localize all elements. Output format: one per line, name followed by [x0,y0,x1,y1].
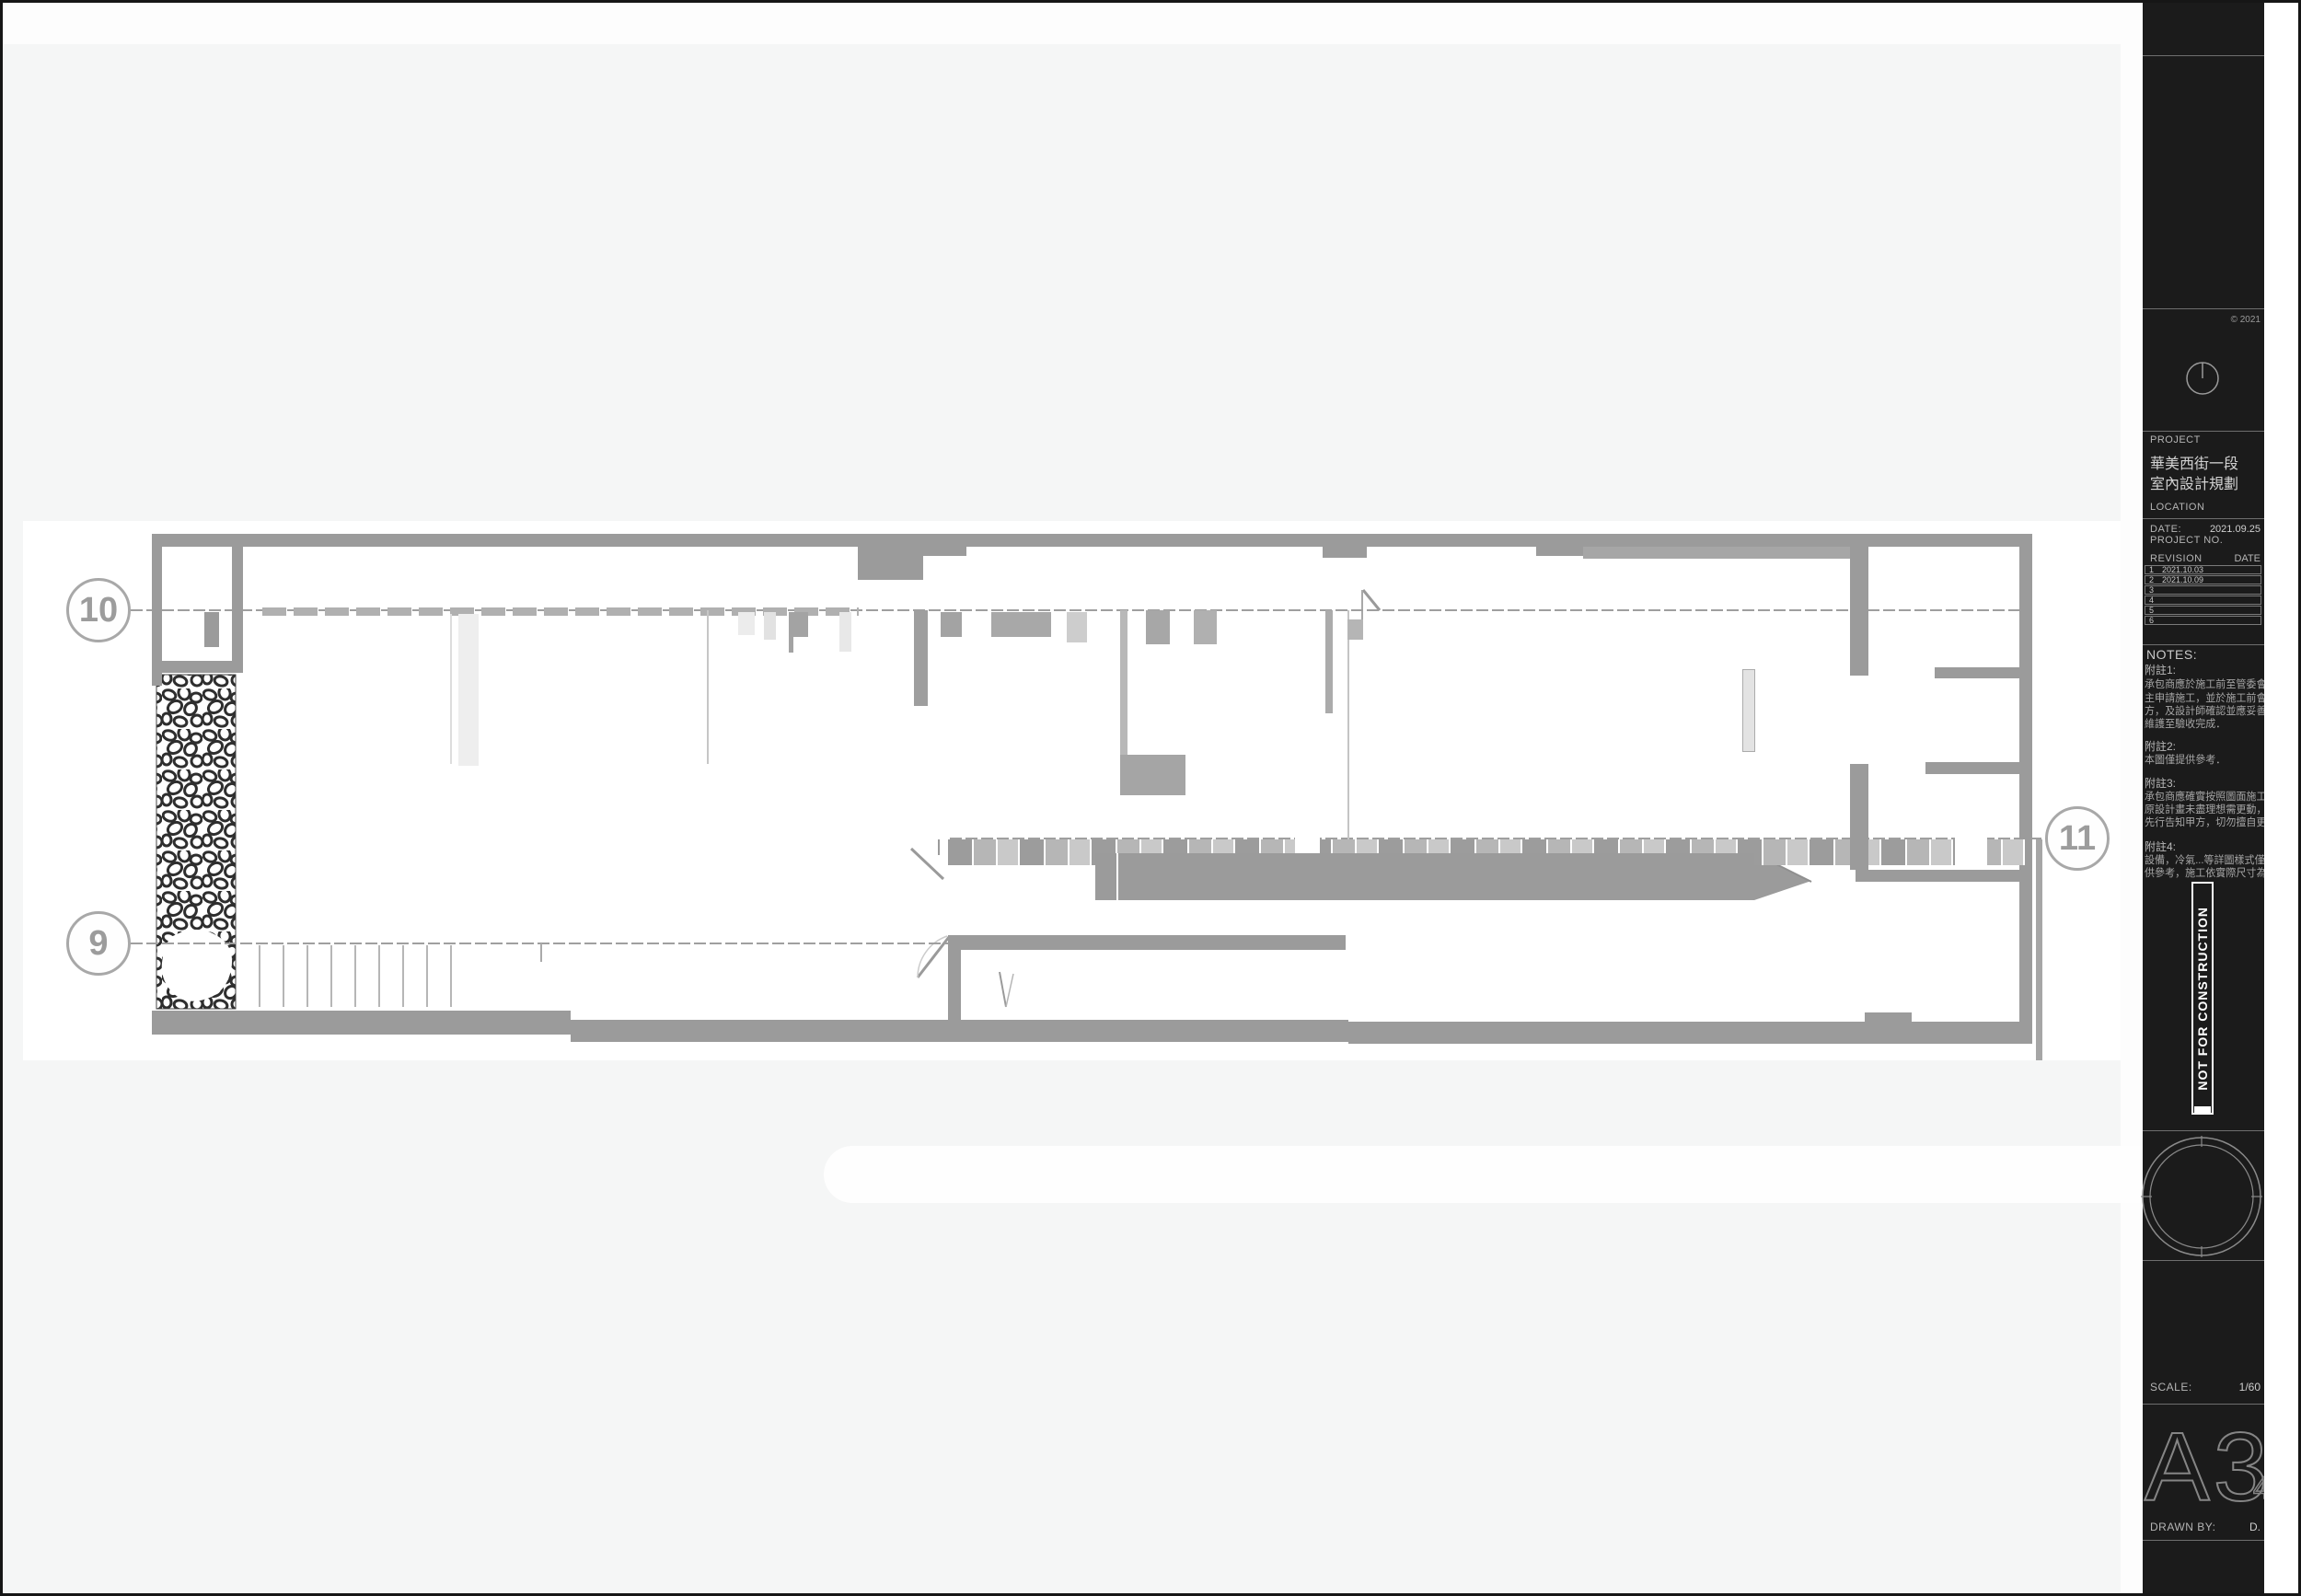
revision-no: 2 [2149,575,2162,584]
grid-bubble-11-label: 11 [2059,819,2096,859]
note-line: 本圖僅提供參考． [2145,752,2226,767]
location-label: LOCATION [2150,502,2204,513]
note-head: 附註1: [2145,662,2176,677]
stamp-circle [2141,1134,2266,1259]
wall-right-stub-1 [1935,667,2024,678]
wall-right-rooms-vert-lower [1850,764,1868,870]
wall-bottom-right [1348,1022,2032,1044]
fixture-tall-strip [914,610,928,706]
fixture-strip [1325,610,1333,713]
louver-lines [259,945,472,1007]
revision-no: 3 [2149,585,2162,595]
island-counter-slab [1095,853,1754,900]
furniture-block [764,612,776,640]
divider [2143,55,2264,56]
fixture-strip [1120,610,1127,758]
revision-no: 1 [2149,565,2162,574]
divider [2143,1260,2264,1261]
furniture-block [1194,610,1217,644]
revision-row: 3 [2145,585,2261,595]
furniture-block [991,612,1051,637]
sheet-top-strip [0,0,2143,44]
top-pillar-ledge [923,547,966,556]
fixture-light-band [458,614,479,766]
bottom-wall-bump [1865,1012,1912,1024]
wall-lower-room-top [948,935,1346,950]
revision-date-col-header: DATE [2234,553,2261,564]
revision-row: 5 [2145,606,2261,615]
drawing-sheet: 10 9 11 © 2021 PROJECT 華美西街一段 室內設計規劃 LOC… [0,0,2301,1596]
bottom-white-band [824,1146,2143,1203]
revision-row: 2 2021.10.09 [2145,575,2261,584]
louver-tick [540,943,542,962]
note-line: 維護至驗收完成． [2145,716,2226,731]
revision-no: 5 [2149,606,2162,615]
project-name-line1: 華美西街一段 [2150,451,2238,473]
divider [2143,308,2264,309]
wall-bottom-left [152,1011,571,1035]
divider [2143,518,2264,519]
fixture-light-line [450,614,452,764]
top-cabinet-strip [1583,547,1850,559]
right-white-column [2121,0,2143,1596]
grid-bubble-11: 11 [2045,806,2110,871]
wall-left-room-bottom [152,661,243,673]
copyright: © 2021 [2231,315,2261,325]
project-no-label: PROJECT NO. [2150,535,2223,546]
grid-bubble-10: 10 [66,578,131,642]
left-room-pillar [204,612,219,647]
divider [2143,1404,2264,1405]
divider [2143,431,2264,432]
divider [2143,644,2264,645]
top-pillar-2 [1323,547,1367,558]
grid-line-9 [131,943,954,944]
grid-bubble-9: 9 [66,911,131,976]
page-border-left [0,0,3,1596]
revision-date: 2021.10.03 [2162,565,2203,574]
notes-label: NOTES: [2146,647,2197,662]
grid-bubble-9-label: 9 [88,924,108,964]
wall-right [2019,534,2032,1042]
top-pillar-3 [1536,547,1583,556]
top-pillar-large [858,547,923,580]
north-arrow-icon [2182,358,2223,399]
page-border-top [0,0,2301,3]
wall-extension-line [2036,839,2042,1060]
wall-right-stub-2 [1925,762,2024,774]
date-value: 2021.09.25 [2210,524,2261,535]
wall-lower-room-left [948,935,961,1033]
revision-date: 2021.10.09 [2162,575,2203,584]
furniture-block [1120,755,1185,795]
not-for-construction-text: NOT FOR CONSTRUCTION [2195,907,2210,1091]
scale-label: SCALE: [2150,1381,2192,1394]
fixture-thin-line [1347,610,1349,877]
divider [2143,1540,2264,1541]
fixture-thin-line [707,610,709,764]
island-slab-seam [1116,853,1118,900]
furniture-block [839,612,851,652]
grid-bubble-10-label: 10 [79,591,118,630]
wall-left-room-partition [232,547,243,673]
wall-right-rooms-vert-upper [1850,547,1868,676]
sliding-door-leaf [1742,669,1755,752]
not-for-construction-box: NOT FOR CONSTRUCTION [2191,882,2214,1115]
project-name-line2: 室內設計規劃 [2150,471,2238,493]
scale-value: 1/60 [2239,1381,2261,1394]
revision-row: 4 [2145,596,2261,605]
furniture-block [1347,619,1363,640]
furniture-block [1067,612,1087,642]
revision-row: 6 [2145,616,2261,625]
revision-no: 6 [2149,616,2162,625]
revision-no: 4 [2149,596,2162,605]
nfc-box-footer [2194,1106,2211,1113]
furniture-block [789,612,793,653]
furniture-block [941,612,962,637]
furniture-block [738,612,755,635]
revision-row: 1 2021.10.03 [2145,565,2261,574]
furniture-block [1146,610,1170,644]
wall-right-room-bottom [1856,870,2031,882]
date-label: DATE: [2150,524,2181,535]
project-label: PROJECT [2150,434,2201,445]
divider [2143,1130,2264,1131]
revision-col-header: REVISION [2150,553,2203,564]
right-margin-strip [2264,0,2298,1596]
counter-row-gap [1955,838,1987,867]
wall-top [152,534,2031,547]
title-block: © 2021 PROJECT 華美西街一段 室內設計規劃 LOCATION DA… [2143,0,2264,1596]
